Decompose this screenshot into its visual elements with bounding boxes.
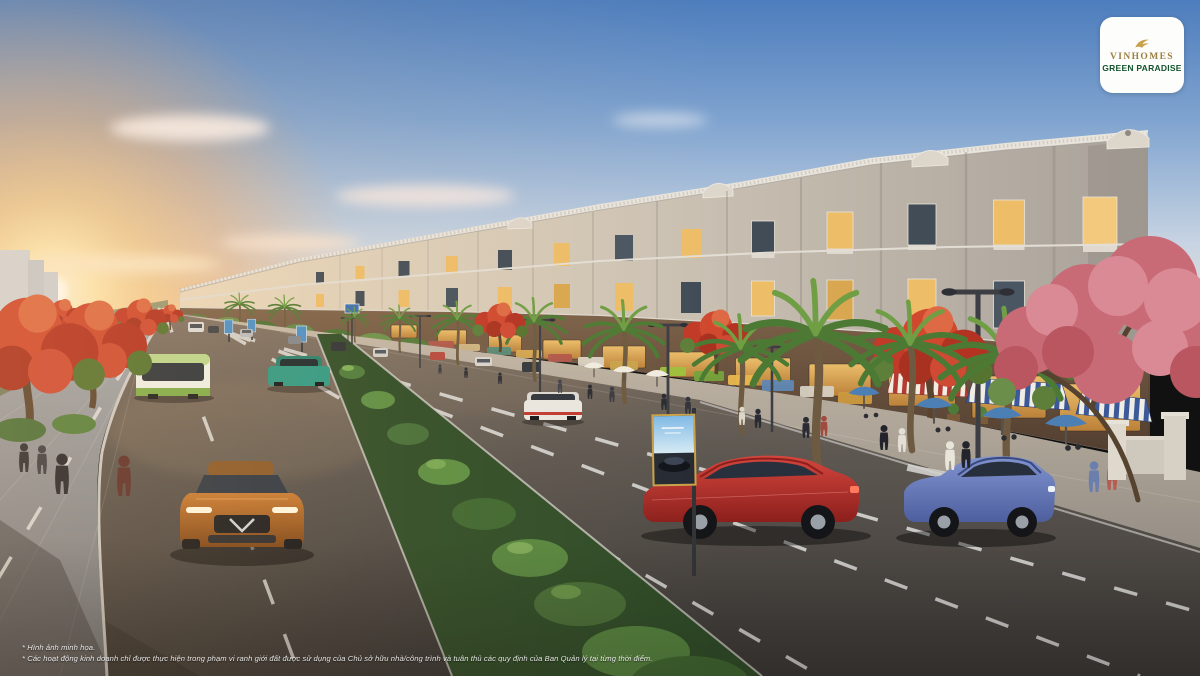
color-grade xyxy=(0,0,1200,676)
disclaimer-line1: * Hình ảnh minh họa. xyxy=(22,643,653,654)
project-name: GREEN PARADISE xyxy=(1102,63,1181,73)
disclaimer-line2: * Các hoạt động kinh doanh chỉ được thực… xyxy=(22,654,653,665)
swallow-icon xyxy=(1132,38,1152,50)
render-image: VINHOMES GREEN PARADISE * Hình ảnh minh … xyxy=(0,0,1200,676)
disclaimer: * Hình ảnh minh họa. * Các hoạt động kin… xyxy=(22,643,653,664)
brand-name: VINHOMES xyxy=(1110,52,1174,62)
street-scene xyxy=(0,0,1200,676)
logo-badge: VINHOMES GREEN PARADISE xyxy=(1100,17,1184,93)
